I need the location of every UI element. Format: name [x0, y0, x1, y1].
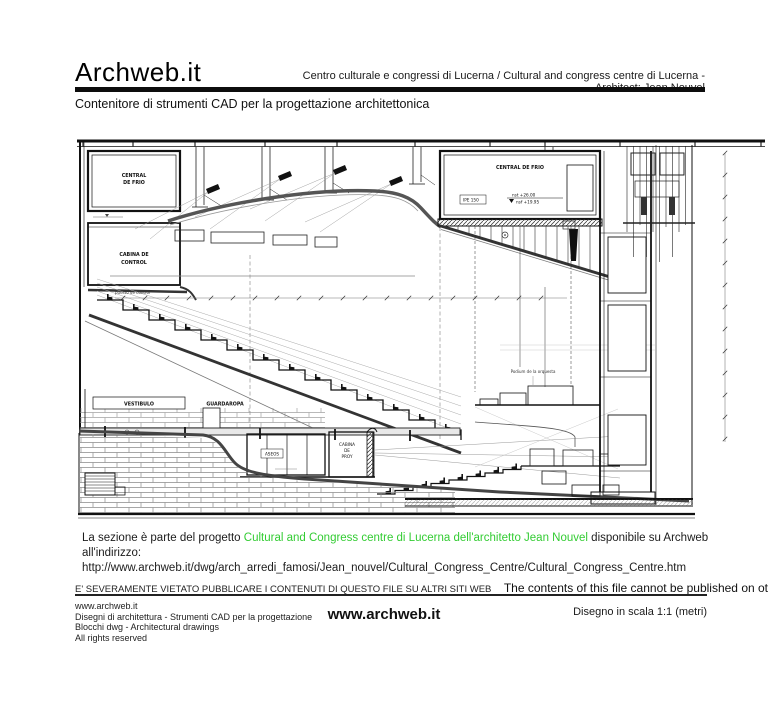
cad-section-drawing: CENTRAL DE FRIO CABINA DE CONTROL: [75, 137, 768, 523]
label-control-point: puesto de control: [115, 290, 150, 295]
projection-booth: CABINA DE PROY: [329, 428, 377, 477]
footer-left: www.archweb.it Disegni di architettura -…: [75, 601, 312, 643]
cad-svg: CENTRAL DE FRIO CABINA DE CONTROL: [75, 137, 768, 523]
plant-room-right: CENTRAL DE FRIO IPE 150 nst +26.00 nsf +…: [438, 151, 602, 226]
section-lines: [250, 227, 440, 439]
label-control-2: CONTROL: [121, 260, 147, 266]
canopy-hangers: [447, 221, 590, 392]
roof-band: [77, 141, 765, 147]
acoustic-canopy: [441, 226, 620, 284]
footer-site-url[interactable]: www.archweb.it: [75, 601, 312, 612]
footer-line-3: Blocchi dwg - Architectural drawings: [75, 622, 312, 633]
caption: La sezione è parte del progetto Cultural…: [82, 531, 722, 576]
toilets-room: ASEOS: [240, 434, 375, 477]
stage-rigging: [623, 146, 695, 262]
label-beam: IPE 150: [463, 198, 479, 203]
footer-scale-note: Disegno in scala 1:1 (metri): [500, 606, 707, 618]
footer-line-2: Disegni di architettura - Strumenti CAD …: [75, 612, 312, 623]
ground-masonry: [78, 431, 695, 518]
label-wardrobe: GUARDAROPA: [206, 402, 244, 408]
label-projection-2: DE: [344, 448, 350, 453]
control-room: CABINA DE CONTROL: [88, 223, 196, 300]
label-plant-right: CENTRAL DE FRIO: [496, 165, 544, 171]
header-rule: [75, 87, 705, 92]
label-toilets: ASEOS: [265, 452, 279, 457]
caption-highlight-link[interactable]: Cultural and Congress centre di Lucerna …: [244, 532, 588, 544]
page: { "header": { "logo": "Archweb.it", "sub…: [0, 0, 768, 703]
footer-center-url[interactable]: www.archweb.it: [284, 606, 484, 623]
hall-ceiling: [168, 191, 441, 227]
dimension-chain-right: [723, 151, 727, 442]
caption-text-before: La sezione è parte del progetto: [82, 532, 241, 544]
label-vestibule: VESTIBULO: [124, 402, 154, 408]
footer-line-4: All rights reserved: [75, 633, 312, 644]
label-podium: Podium de la orquesta: [511, 369, 556, 374]
footer-rule: [75, 594, 707, 596]
caption-url: http://www.archweb.it/dwg/arch_arredi_fa…: [82, 562, 686, 574]
plant-room-left: CENTRAL DE FRIO: [88, 151, 180, 217]
label-level-top: nst +26.00: [512, 193, 536, 198]
label-projection-1: CABINA: [339, 442, 355, 447]
vestibule: VESTIBULO GUARDAROPA: [80, 389, 325, 430]
site-tagline: Contenitore di strumenti CAD per la prog…: [75, 97, 429, 111]
label-projection-3: PROY: [341, 454, 353, 459]
label-plant-left-2: DE FRIO: [123, 180, 145, 186]
notice-english: The contents of this file cannot be publ…: [504, 581, 768, 595]
label-plant-left-1: CENTRAL: [122, 173, 147, 179]
site-logo[interactable]: Archweb.it: [75, 57, 201, 88]
label-level-bottom: nsf +19.95: [516, 200, 539, 205]
label-control-1: CABINA DE: [119, 252, 148, 258]
